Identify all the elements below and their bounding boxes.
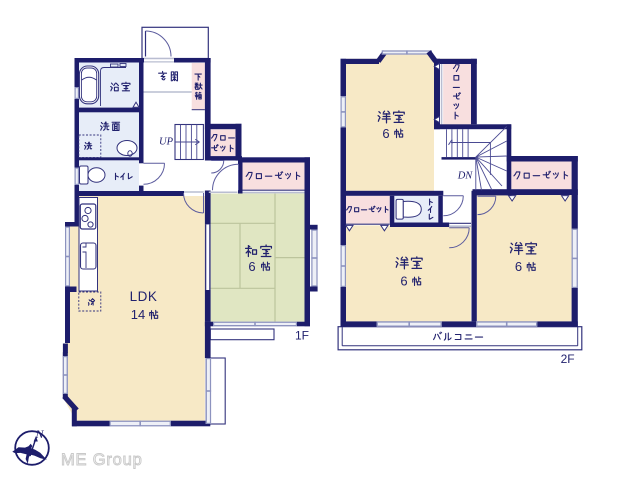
svg-text:6: 6 <box>515 259 522 274</box>
svg-text:UP: UP <box>159 136 174 147</box>
svg-text:6: 6 <box>382 126 389 141</box>
svg-text:2F: 2F <box>561 352 575 366</box>
svg-text:DN: DN <box>457 171 474 182</box>
svg-text:ME Group: ME Group <box>61 451 143 469</box>
svg-text:14: 14 <box>131 307 145 322</box>
svg-text:1F: 1F <box>295 329 309 343</box>
svg-text:LDK: LDK <box>130 289 158 304</box>
svg-text:6: 6 <box>248 259 255 274</box>
svg-text:6: 6 <box>400 274 407 289</box>
